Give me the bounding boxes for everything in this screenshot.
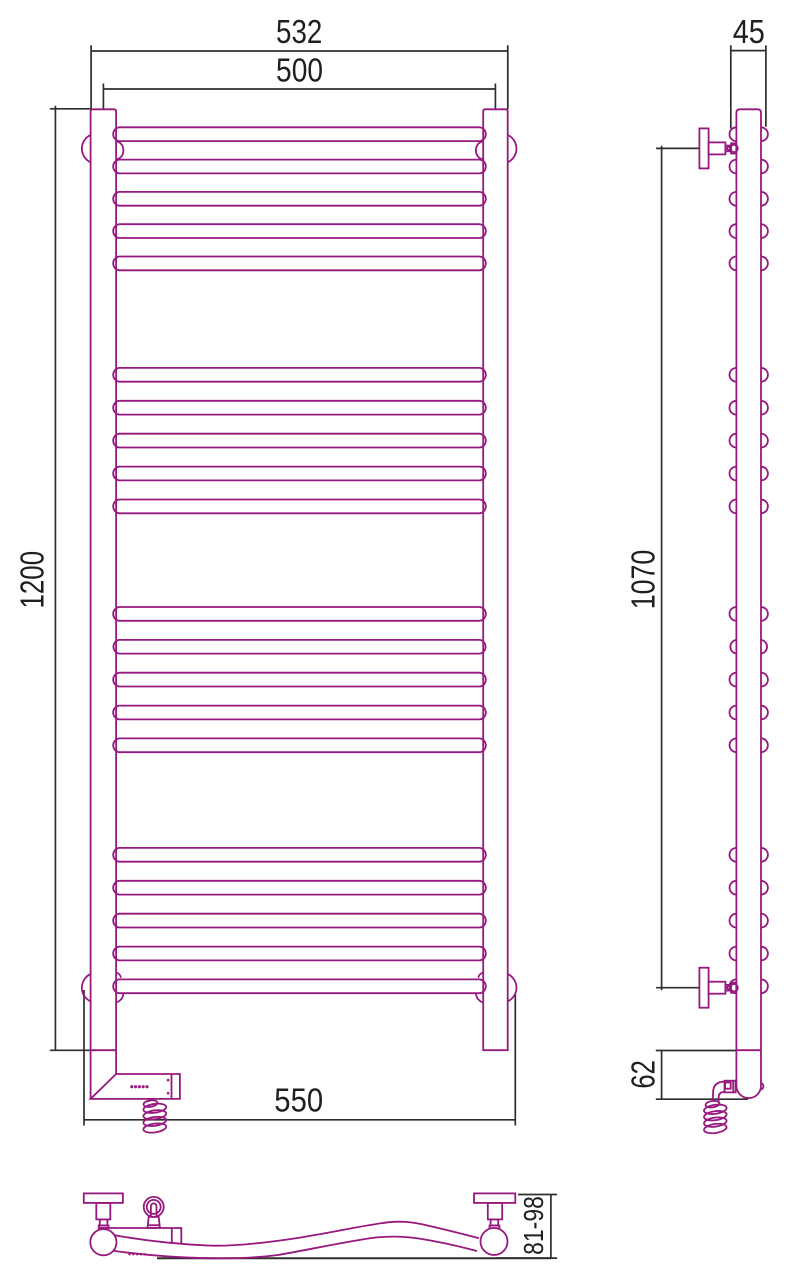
svg-text:500: 500 <box>276 51 323 88</box>
svg-text:1200: 1200 <box>14 551 51 609</box>
svg-text:550: 550 <box>274 1082 323 1119</box>
svg-text:62: 62 <box>625 1060 662 1089</box>
svg-text:45: 45 <box>733 13 765 50</box>
svg-text:81-98: 81-98 <box>518 1196 549 1255</box>
svg-text:1070: 1070 <box>624 550 661 610</box>
svg-text:532: 532 <box>276 13 322 50</box>
